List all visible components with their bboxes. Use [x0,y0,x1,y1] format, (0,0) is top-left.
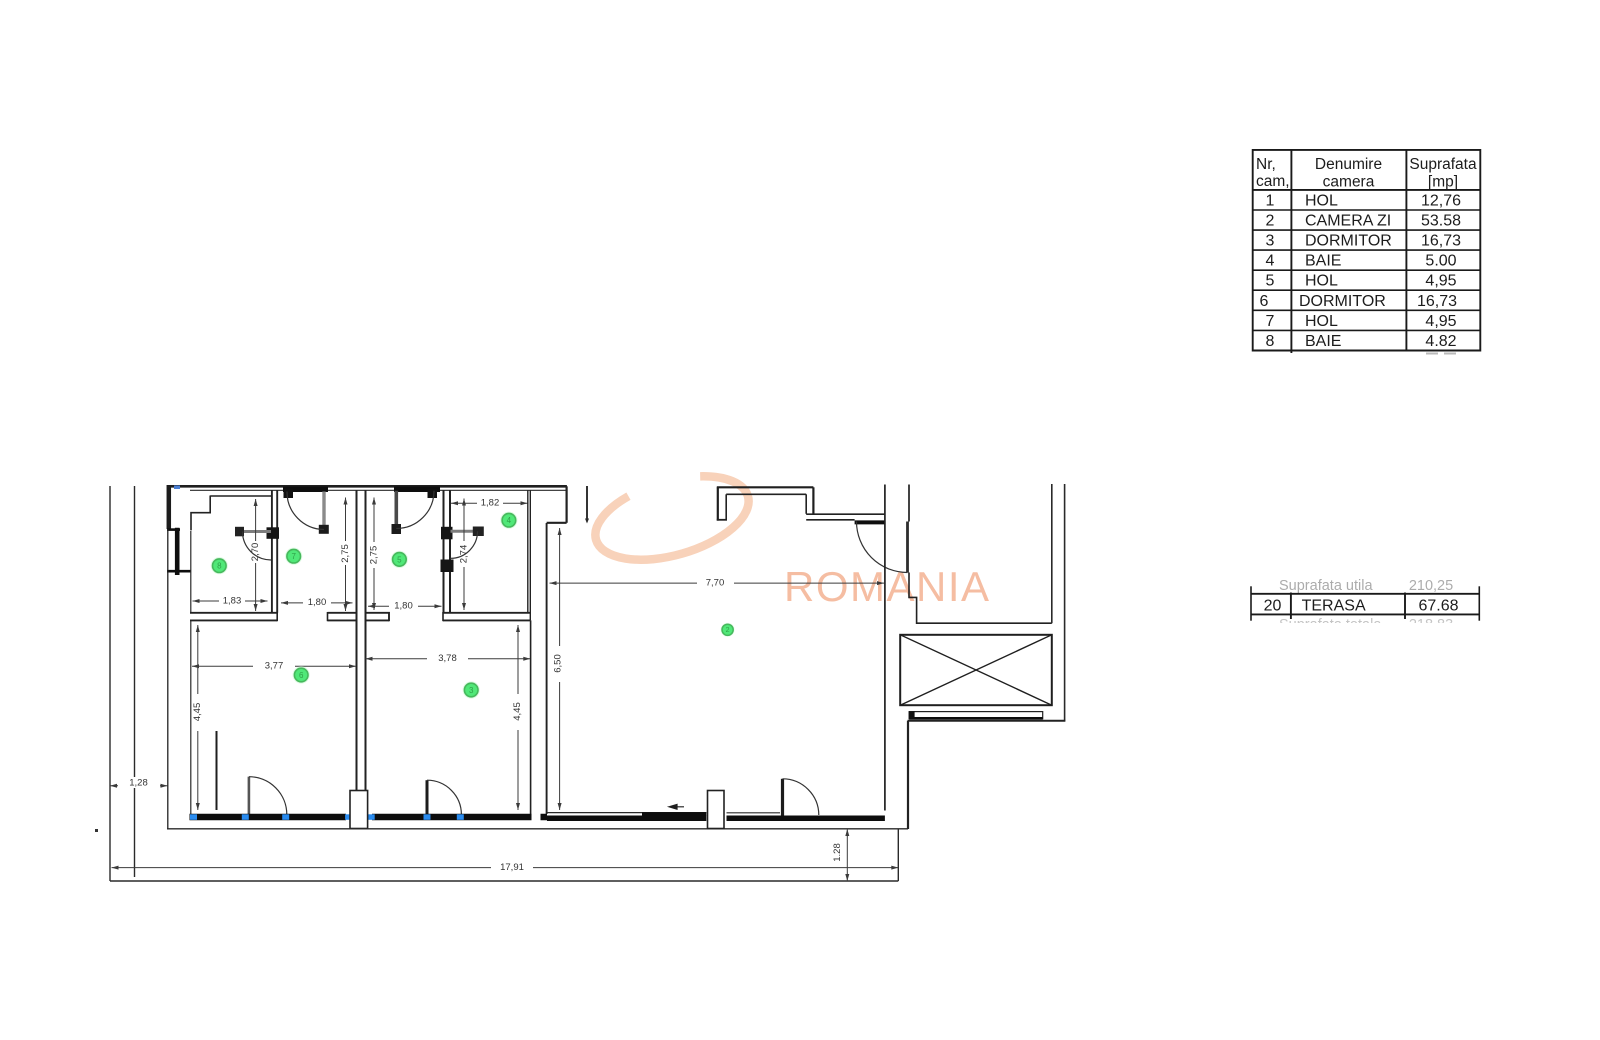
svg-text:7: 7 [291,552,296,561]
svg-text:Suprafata: Suprafata [1409,156,1477,173]
svg-text:6,50: 6,50 [552,654,563,673]
svg-text:5: 5 [1266,273,1275,290]
svg-text:1,80: 1,80 [308,597,327,608]
svg-text:BAIE: BAIE [1305,333,1341,350]
svg-text:6: 6 [299,671,304,680]
svg-text:20: 20 [1264,597,1282,614]
svg-text:BAIE: BAIE [1305,253,1341,270]
svg-text:12,76: 12,76 [1421,193,1461,210]
svg-text:1.28: 1.28 [832,843,843,862]
svg-text:3,77: 3,77 [265,661,284,672]
svg-text:TERASA: TERASA [1302,597,1366,614]
svg-text:5: 5 [397,555,402,564]
svg-text:4,95: 4,95 [1425,313,1456,330]
svg-text:16,73: 16,73 [1417,293,1457,310]
svg-text:53.58: 53.58 [1421,213,1461,230]
svg-text:DORMITOR: DORMITOR [1299,293,1386,310]
svg-text:DORMITOR: DORMITOR [1305,233,1392,250]
svg-text:4,95: 4,95 [1425,273,1456,290]
svg-text:1,80: 1,80 [394,601,413,612]
svg-text:7: 7 [1266,313,1275,330]
svg-text:HOL: HOL [1305,193,1338,210]
svg-text:3: 3 [1266,233,1275,250]
svg-text:4,45: 4,45 [512,702,523,721]
svg-text:67.68: 67.68 [1418,597,1458,614]
svg-text:2: 2 [726,627,730,634]
svg-text:1,82: 1,82 [481,498,500,509]
svg-text:210,25: 210,25 [1409,578,1453,594]
svg-text:2: 2 [1266,213,1275,230]
svg-text:1,28: 1,28 [129,777,148,788]
svg-text:2,74: 2,74 [459,545,470,564]
svg-text:5.00: 5.00 [1425,253,1456,270]
svg-text:HOL: HOL [1305,313,1338,330]
svg-text:17,91: 17,91 [500,862,524,873]
svg-text:3: 3 [469,686,474,695]
svg-text:8: 8 [1266,333,1275,350]
svg-text:CAMERA ZI: CAMERA ZI [1305,213,1391,230]
svg-text:2,75: 2,75 [340,544,351,563]
svg-text:7,70: 7,70 [706,578,725,589]
svg-text:camera: camera [1323,174,1375,191]
svg-text:4: 4 [507,516,512,525]
svg-text:3,78: 3,78 [438,653,457,664]
svg-text:Nr,: Nr, [1256,156,1276,173]
svg-text:4,45: 4,45 [192,703,203,722]
svg-text:16,73: 16,73 [1421,233,1461,250]
svg-text:4: 4 [1266,253,1275,270]
svg-text:Suprafata utila: Suprafata utila [1279,578,1373,594]
svg-text:4.82: 4.82 [1425,333,1456,350]
svg-text:2,70: 2,70 [250,543,261,562]
svg-text:ROMANIA: ROMANIA [784,563,991,610]
svg-text:cam,: cam, [1256,173,1290,190]
svg-text:8: 8 [217,562,222,571]
svg-text:1: 1 [1266,193,1275,210]
svg-text:2,75: 2,75 [369,546,380,565]
svg-text:HOL: HOL [1305,273,1338,290]
svg-text:[mp]: [mp] [1428,174,1458,191]
svg-text:1,83: 1,83 [223,596,242,607]
svg-text:6: 6 [1260,293,1269,310]
svg-text:Denumire: Denumire [1315,156,1382,173]
